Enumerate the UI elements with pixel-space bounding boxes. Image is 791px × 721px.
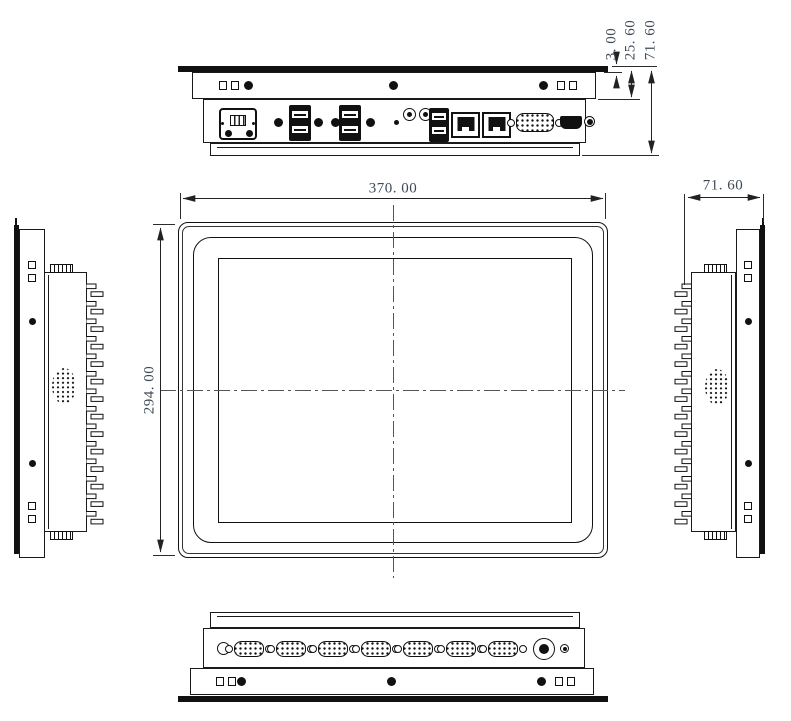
dim-front-width: 370. 00 <box>369 181 418 198</box>
dim-side-depth: 71. 60 <box>703 178 744 195</box>
drawing-canvas: 370. 00 294. 00 71. 60 3. 00 25. 60 71. … <box>0 0 791 721</box>
extension-lines <box>153 67 764 556</box>
dim-bezel-thickness: 3. 00 <box>604 28 621 61</box>
centerlines <box>160 205 625 578</box>
dim-front-height: 294. 00 <box>142 366 159 415</box>
dim-bezel-to-flange: 25. 60 <box>623 20 640 61</box>
dim-total-depth: 71. 60 <box>643 20 660 61</box>
dimension-lines-layer <box>0 0 791 721</box>
dimension-arrow-lines <box>161 52 761 552</box>
